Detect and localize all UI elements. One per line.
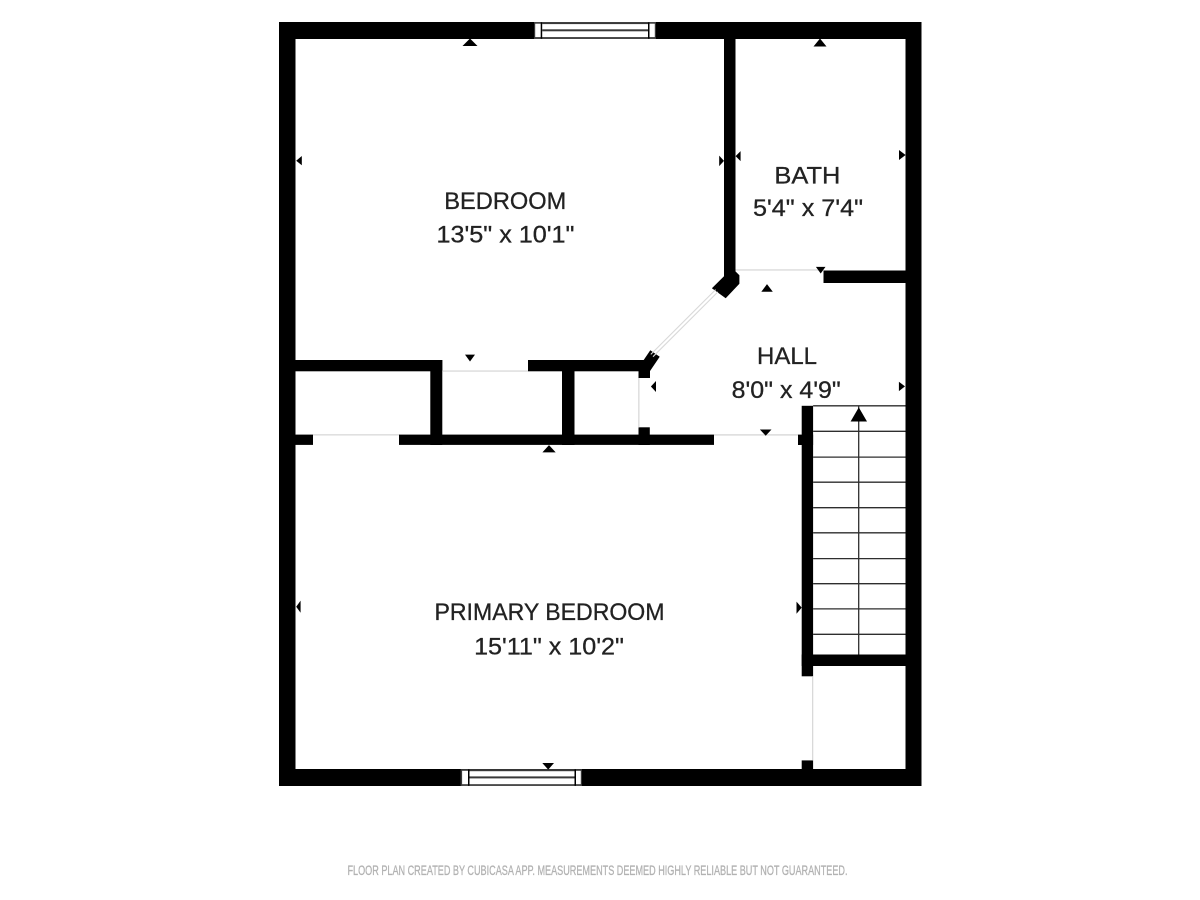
svg-text:BEDROOM: BEDROOM — [444, 188, 566, 215]
svg-text:8'0" x 4'9": 8'0" x 4'9" — [732, 377, 841, 404]
svg-text:15'11" x 10'2": 15'11" x 10'2" — [474, 633, 624, 660]
svg-text:5'4" x 7'4": 5'4" x 7'4" — [753, 195, 863, 222]
svg-text:13'5" x 10'1": 13'5" x 10'1" — [437, 222, 575, 249]
svg-text:PRIMARY BEDROOM: PRIMARY BEDROOM — [435, 599, 665, 626]
svg-text:BATH: BATH — [774, 163, 840, 190]
svg-text:HALL: HALL — [757, 343, 817, 370]
svg-text:FLOOR PLAN CREATED BY CUBICASA: FLOOR PLAN CREATED BY CUBICASA APP. MEAS… — [348, 863, 848, 878]
